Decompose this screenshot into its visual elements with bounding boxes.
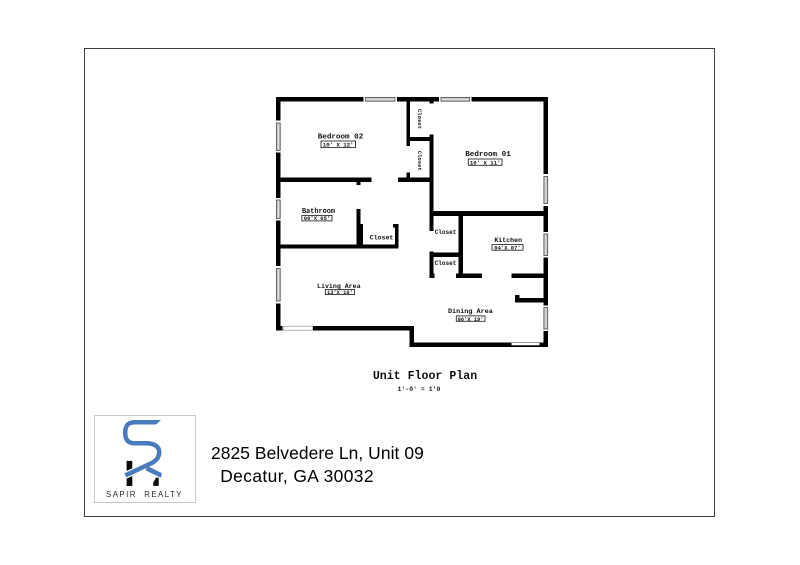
svg-text:06'X 05': 06'X 05'	[304, 215, 330, 222]
svg-text:Bedroom 02: Bedroom 02	[318, 134, 364, 142]
svg-text:Dining Area: Dining Area	[448, 308, 493, 316]
svg-text:Closet: Closet	[435, 260, 457, 267]
svg-text:Closet: Closet	[370, 234, 394, 241]
svg-text:10' X 11': 10' X 11'	[470, 159, 501, 166]
svg-text:04'X 07': 04'X 07'	[494, 245, 520, 252]
svg-text:13'X 10': 13'X 10'	[327, 290, 353, 296]
svg-text:06'X 19': 06'X 19'	[458, 317, 484, 323]
svg-text:Closet: Closet	[435, 229, 457, 236]
svg-text:Living Area: Living Area	[317, 283, 361, 290]
svg-text:Kitchen: Kitchen	[494, 237, 522, 244]
svg-text:Bedroom 01: Bedroom 01	[465, 151, 511, 159]
svg-text:Closet: Closet	[416, 151, 423, 171]
svg-text:10' X 12': 10' X 12'	[323, 142, 354, 149]
svg-text:Closet: Closet	[416, 109, 423, 129]
